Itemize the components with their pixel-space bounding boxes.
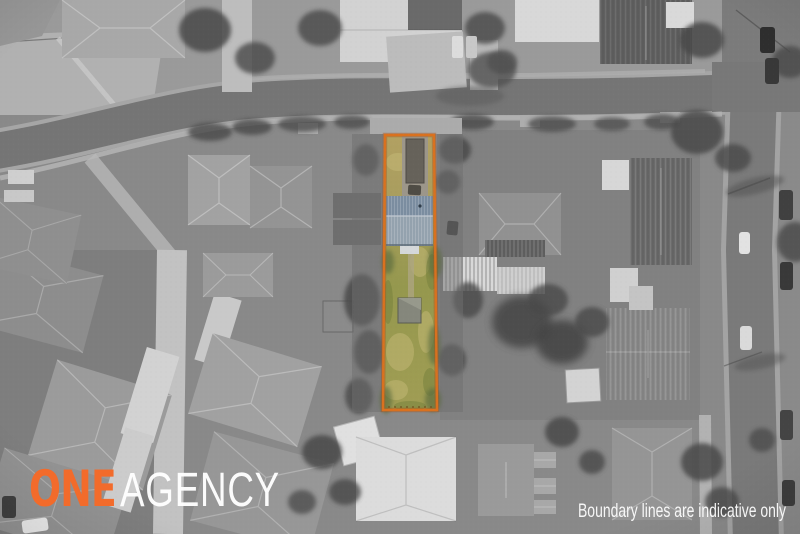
disclaimer-text: Boundary lines are indicative only: [578, 500, 786, 522]
logo-one-text: ONE: [29, 460, 116, 518]
logo-agency-text: AGENCY: [120, 464, 280, 517]
aerial-property-photo: ONE AGENCY Boundary lines are indicative…: [0, 0, 800, 534]
aerial-photo-canvas: ONE AGENCY Boundary lines are indicative…: [0, 0, 800, 534]
photo-overlays: [0, 0, 800, 534]
